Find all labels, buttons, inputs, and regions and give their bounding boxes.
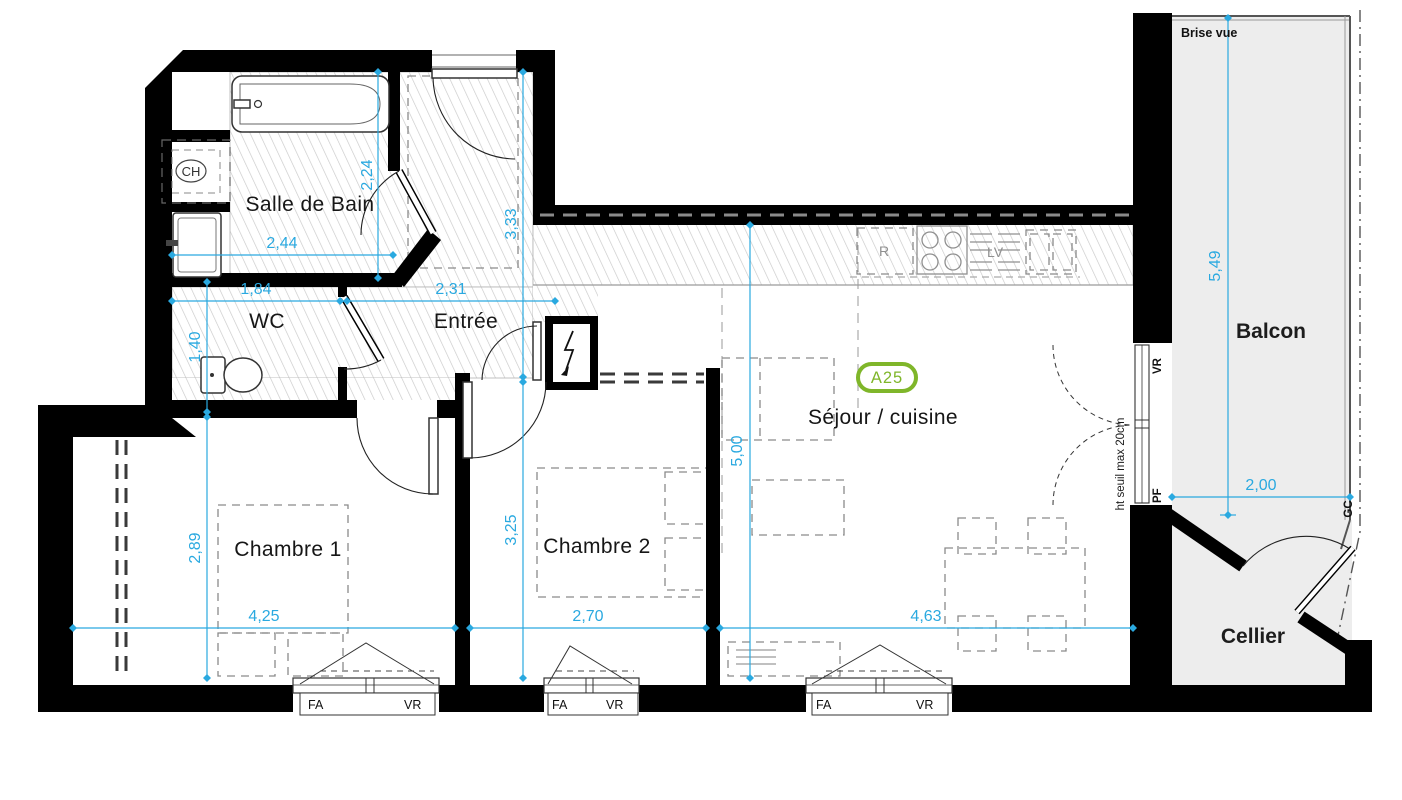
bathtub-tap [234, 100, 250, 108]
room-cellier-floor [1172, 520, 1352, 688]
window-label-fa: FA [308, 698, 324, 712]
room-label-chambre2: Chambre 2 [543, 535, 650, 558]
dim-sdb-width: 2,44 [266, 235, 297, 252]
chambre2-door [463, 382, 546, 458]
wardrobe-chambre1 [117, 440, 126, 676]
window-label-fa: FA [816, 698, 832, 712]
room-label-cellier: Cellier [1221, 625, 1285, 648]
window-label-vr: VR [606, 698, 623, 712]
water-heater-label: CH [182, 164, 201, 179]
floor-plan: FA VR FA VR FA VR [0, 0, 1402, 800]
unit-badge: A25 [858, 364, 916, 391]
dim-chambre1-height: 2,89 [187, 532, 204, 563]
room-label-sejour: Séjour / cuisine [808, 406, 958, 429]
dim-chambre2-width: 2,70 [572, 608, 603, 625]
dim-sejour-width: 4,63 [910, 608, 941, 625]
room-label-entree: Entrée [434, 310, 498, 333]
balcony-door-label-vr: VR [1152, 357, 1164, 374]
room-label-chambre1: Chambre 1 [234, 538, 341, 561]
dishwasher-label: LV [987, 244, 1004, 260]
floor-plan-page: FA VR FA VR FA VR [0, 0, 1402, 800]
window-chambre2: FA VR [544, 646, 639, 715]
closet-door-leaf [533, 322, 541, 380]
dim-balcon-width: 2,00 [1245, 477, 1276, 494]
window-label-vr: VR [404, 698, 421, 712]
dining-table [945, 518, 1085, 651]
balcony-door-label-pf: PF [1152, 488, 1164, 503]
room-balcon-floor [1172, 15, 1352, 688]
window-sejour: FA VR [806, 645, 952, 715]
room-label-salle-de-bain: Salle de Bain [246, 193, 375, 216]
room-label-wc: WC [249, 310, 285, 333]
fridge-label: R [879, 243, 889, 259]
unit-badge-label: A25 [871, 369, 903, 387]
room-label-balcon: Balcon [1236, 320, 1306, 343]
chambre1-door [357, 418, 438, 494]
balcony-door: VR PF ht seuil max 20cm [1053, 343, 1172, 510]
dim-chambre1-width: 4,25 [248, 608, 279, 625]
dim-sejour-height: 5,00 [729, 435, 746, 466]
bed-chambre2 [537, 468, 708, 597]
dim-entree-width: 2,31 [435, 281, 466, 298]
dim-chambre2-height: 3,25 [503, 514, 520, 545]
dim-entree-height: 3,33 [503, 208, 520, 239]
bathtub [232, 76, 389, 132]
brise-vue-label: Brise vue [1181, 26, 1237, 40]
window-label-fa: FA [552, 698, 568, 712]
bed-chambre1 [218, 505, 348, 676]
threshold-note: ht seuil max 20cm [1115, 418, 1127, 511]
dim-balcon-height: 5,49 [1207, 250, 1224, 281]
wardrobe-chambre2 [600, 374, 704, 382]
tv-unit [728, 642, 840, 676]
window-label-vr: VR [916, 698, 933, 712]
window-chambre1: FA VR [293, 643, 439, 715]
dim-sdb-height: 2,24 [359, 159, 376, 190]
washbasin [166, 213, 221, 277]
toilet [201, 357, 262, 393]
gc-label: GC [1343, 500, 1355, 517]
washbasin-tap [166, 240, 178, 246]
dim-wc-width: 1,84 [240, 281, 271, 298]
dim-wc-height: 1,40 [187, 331, 204, 362]
windows: FA VR FA VR FA VR [293, 643, 952, 715]
